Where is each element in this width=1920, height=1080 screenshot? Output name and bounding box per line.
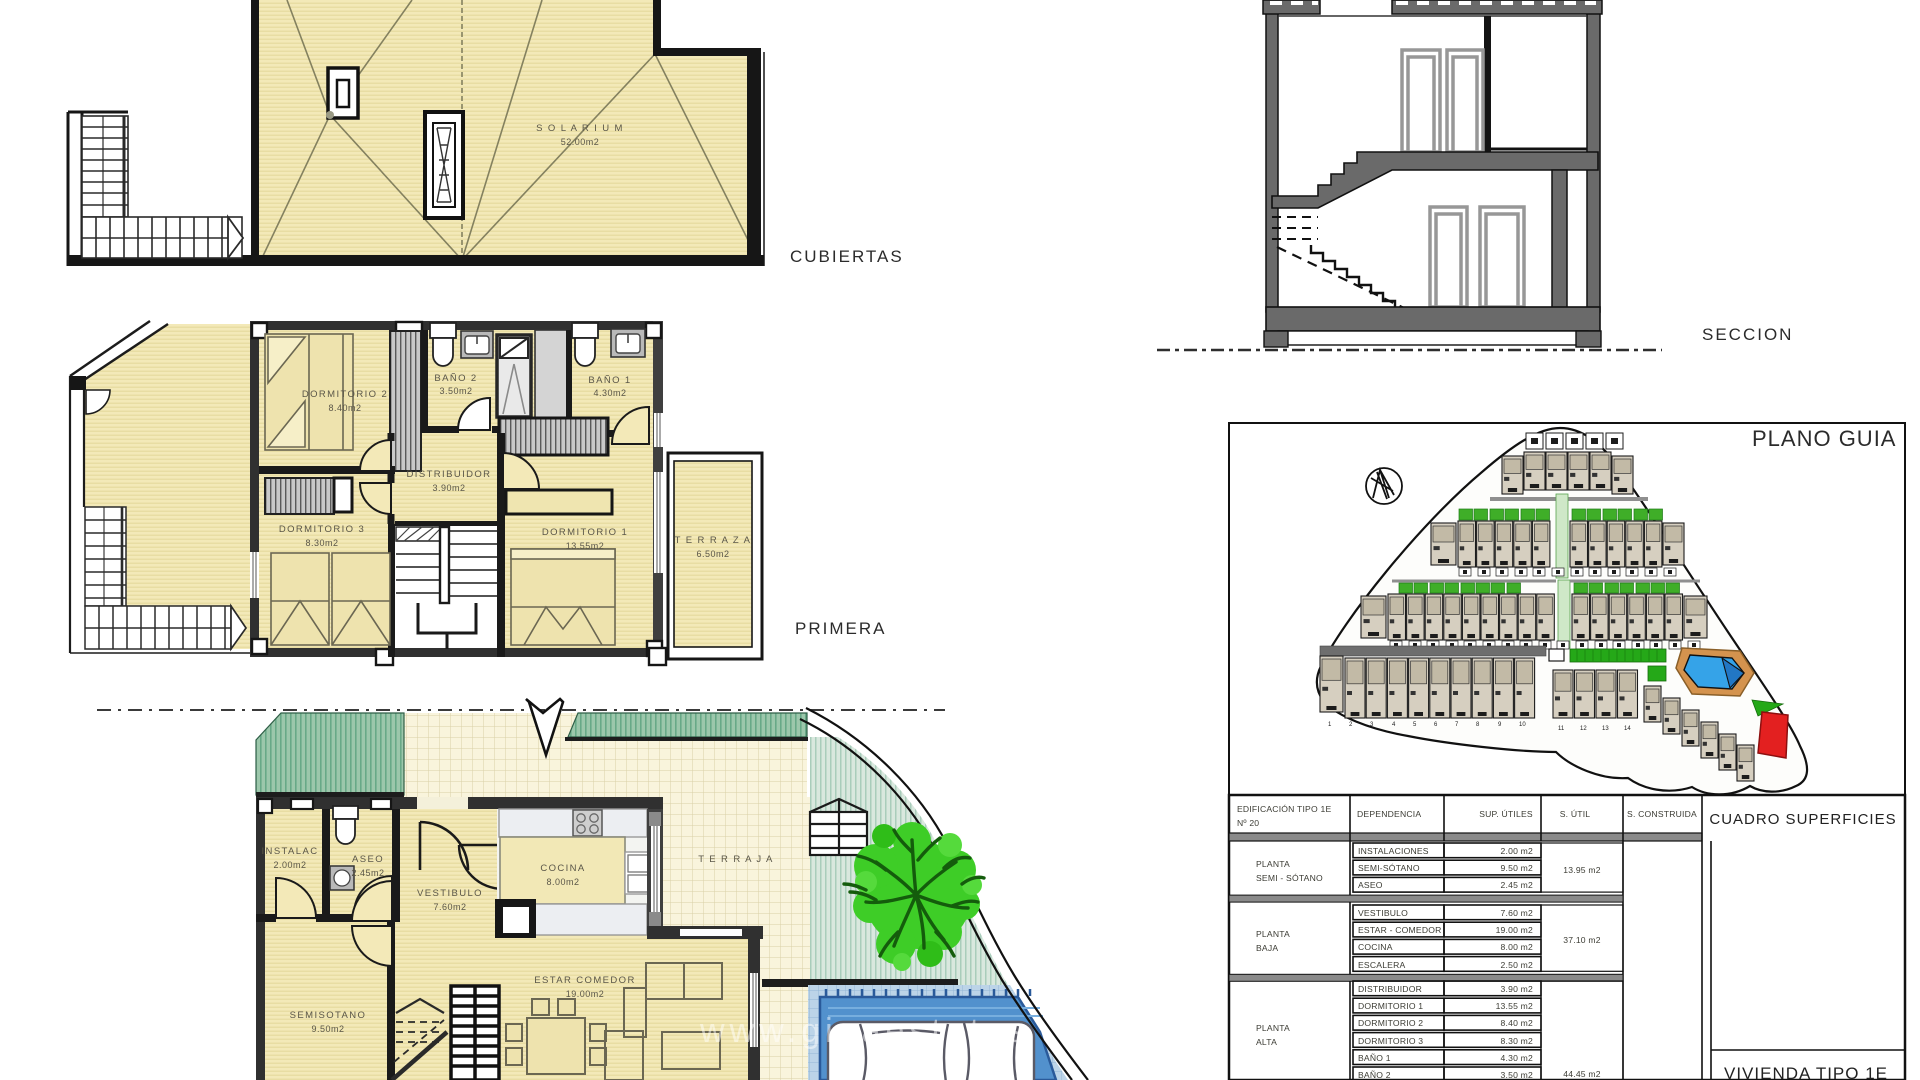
svg-text:PLANTA: PLANTA bbox=[1256, 1023, 1290, 1033]
svg-text:SEMISOTANO: SEMISOTANO bbox=[290, 1010, 367, 1021]
svg-text:BAÑO 2: BAÑO 2 bbox=[434, 373, 477, 384]
svg-text:4.30m2: 4.30m2 bbox=[593, 388, 626, 398]
svg-text:8.30m2: 8.30m2 bbox=[305, 538, 338, 548]
svg-text:ESTAR - COMEDOR: ESTAR - COMEDOR bbox=[1358, 925, 1442, 935]
svg-text:DISTRIBUIDOR: DISTRIBUIDOR bbox=[1358, 984, 1422, 994]
svg-text:3.90m2: 3.90m2 bbox=[432, 483, 465, 493]
svg-text:ESTAR COMEDOR: ESTAR COMEDOR bbox=[534, 975, 635, 986]
svg-text:7.60m2: 7.60m2 bbox=[433, 902, 466, 912]
svg-text:VESTIBULO: VESTIBULO bbox=[417, 888, 483, 899]
svg-text:4.30 m2: 4.30 m2 bbox=[1501, 1053, 1533, 1063]
svg-text:9.50m2: 9.50m2 bbox=[311, 1024, 344, 1034]
svg-text:ASEO: ASEO bbox=[352, 854, 384, 865]
svg-text:PLANTA: PLANTA bbox=[1256, 929, 1290, 939]
svg-text:3.50 m2: 3.50 m2 bbox=[1501, 1070, 1533, 1080]
svg-text:S. CONSTRUIDA: S. CONSTRUIDA bbox=[1627, 809, 1697, 819]
svg-text:T E R R A J A: T E R R A J A bbox=[698, 854, 774, 865]
svg-text:8.00m2: 8.00m2 bbox=[546, 877, 579, 887]
svg-text:2.45m2: 2.45m2 bbox=[351, 868, 384, 878]
svg-text:INSTALACIONES: INSTALACIONES bbox=[1358, 846, 1429, 856]
svg-text:Nº 20: Nº 20 bbox=[1237, 818, 1259, 828]
svg-text:19.00 m2: 19.00 m2 bbox=[1496, 925, 1533, 935]
svg-text:SEMI-SÓTANO: SEMI-SÓTANO bbox=[1358, 863, 1420, 873]
svg-text:6.50m2: 6.50m2 bbox=[696, 549, 729, 559]
svg-text:14: 14 bbox=[1624, 726, 1631, 732]
svg-text:COCINA: COCINA bbox=[540, 863, 585, 874]
svg-text:9.50 m2: 9.50 m2 bbox=[1501, 863, 1533, 873]
svg-text:T E R R A Z A: T E R R A Z A bbox=[675, 535, 752, 546]
svg-text:PLANO GUIA: PLANO GUIA bbox=[1752, 426, 1896, 451]
svg-text:8.30 m2: 8.30 m2 bbox=[1501, 1036, 1533, 1046]
svg-text:3.90 m2: 3.90 m2 bbox=[1501, 984, 1533, 994]
svg-text:CUBIERTAS: CUBIERTAS bbox=[790, 247, 904, 266]
svg-text:3.50m2: 3.50m2 bbox=[439, 386, 472, 396]
svg-text:DISTRIBUIDOR: DISTRIBUIDOR bbox=[407, 469, 492, 480]
svg-text:2.00m2: 2.00m2 bbox=[273, 860, 306, 870]
svg-text:8.40m2: 8.40m2 bbox=[328, 403, 361, 413]
svg-text:VESTIBULO: VESTIBULO bbox=[1358, 908, 1408, 918]
svg-text:52.00m2: 52.00m2 bbox=[561, 137, 600, 147]
svg-text:13.95 m2: 13.95 m2 bbox=[1563, 865, 1600, 875]
svg-text:44.45 m2: 44.45 m2 bbox=[1563, 1069, 1600, 1079]
svg-text:DEPENDENCIA: DEPENDENCIA bbox=[1357, 809, 1421, 819]
svg-text:INSTALAC: INSTALAC bbox=[262, 846, 319, 857]
svg-text:10: 10 bbox=[1519, 722, 1526, 728]
svg-text:12: 12 bbox=[1580, 726, 1587, 732]
svg-text:CUADRO SUPERFICIES: CUADRO SUPERFICIES bbox=[1709, 811, 1896, 828]
svg-text:SUP. ÚTILES: SUP. ÚTILES bbox=[1479, 809, 1533, 819]
svg-text:7.60 m2: 7.60 m2 bbox=[1501, 908, 1533, 918]
svg-text:S. ÚTIL: S. ÚTIL bbox=[1560, 809, 1591, 819]
svg-text:8.00 m2: 8.00 m2 bbox=[1501, 942, 1533, 952]
svg-text:PLANTA: PLANTA bbox=[1256, 859, 1290, 869]
svg-text:BAJA: BAJA bbox=[1256, 943, 1278, 953]
svg-text:2.00 m2: 2.00 m2 bbox=[1501, 846, 1533, 856]
svg-text:2.45 m2: 2.45 m2 bbox=[1501, 880, 1533, 890]
svg-text:DORMITORIO 1: DORMITORIO 1 bbox=[542, 527, 628, 538]
svg-text:13: 13 bbox=[1602, 726, 1609, 732]
svg-text:ALTA: ALTA bbox=[1256, 1037, 1277, 1047]
svg-text:8.40 m2: 8.40 m2 bbox=[1501, 1018, 1533, 1028]
svg-text:SEMI - SÓTANO: SEMI - SÓTANO bbox=[1256, 873, 1323, 883]
svg-text:BAÑO 1: BAÑO 1 bbox=[588, 375, 631, 386]
svg-text:11: 11 bbox=[1558, 726, 1565, 732]
svg-text:19.00m2: 19.00m2 bbox=[566, 989, 605, 999]
svg-text:SECCION: SECCION bbox=[1702, 325, 1793, 344]
svg-text:DORMITORIO 1: DORMITORIO 1 bbox=[1358, 1001, 1423, 1011]
svg-text:DORMITORIO 2: DORMITORIO 2 bbox=[1358, 1018, 1423, 1028]
svg-text:BAÑO 1: BAÑO 1 bbox=[1358, 1053, 1391, 1063]
svg-text:DORMITORIO 3: DORMITORIO 3 bbox=[1358, 1036, 1423, 1046]
svg-text:COCINA: COCINA bbox=[1358, 942, 1393, 952]
svg-text:BAÑO 2: BAÑO 2 bbox=[1358, 1070, 1391, 1080]
svg-text:37.10 m2: 37.10 m2 bbox=[1563, 935, 1600, 945]
svg-text:S O L A R I U M: S O L A R I U M bbox=[536, 123, 624, 134]
svg-text:13.55 m2: 13.55 m2 bbox=[1496, 1001, 1533, 1011]
svg-text:www.gigaestates: www.gigaestates bbox=[699, 1012, 1030, 1050]
svg-text:DORMITORIO 2: DORMITORIO 2 bbox=[302, 389, 388, 400]
svg-text:13.55m2: 13.55m2 bbox=[566, 541, 605, 551]
svg-text:ESCALERA: ESCALERA bbox=[1358, 960, 1406, 970]
svg-text:PRIMERA: PRIMERA bbox=[795, 619, 886, 638]
svg-text:EDIFICACIÓN TIPO 1E: EDIFICACIÓN TIPO 1E bbox=[1237, 804, 1331, 814]
svg-text:DORMITORIO 3: DORMITORIO 3 bbox=[279, 524, 365, 535]
svg-text:2.50 m2: 2.50 m2 bbox=[1501, 960, 1533, 970]
svg-text:VIVIENDA TIPO 1E: VIVIENDA TIPO 1E bbox=[1724, 1064, 1888, 1080]
svg-text:ASEO: ASEO bbox=[1358, 880, 1383, 890]
